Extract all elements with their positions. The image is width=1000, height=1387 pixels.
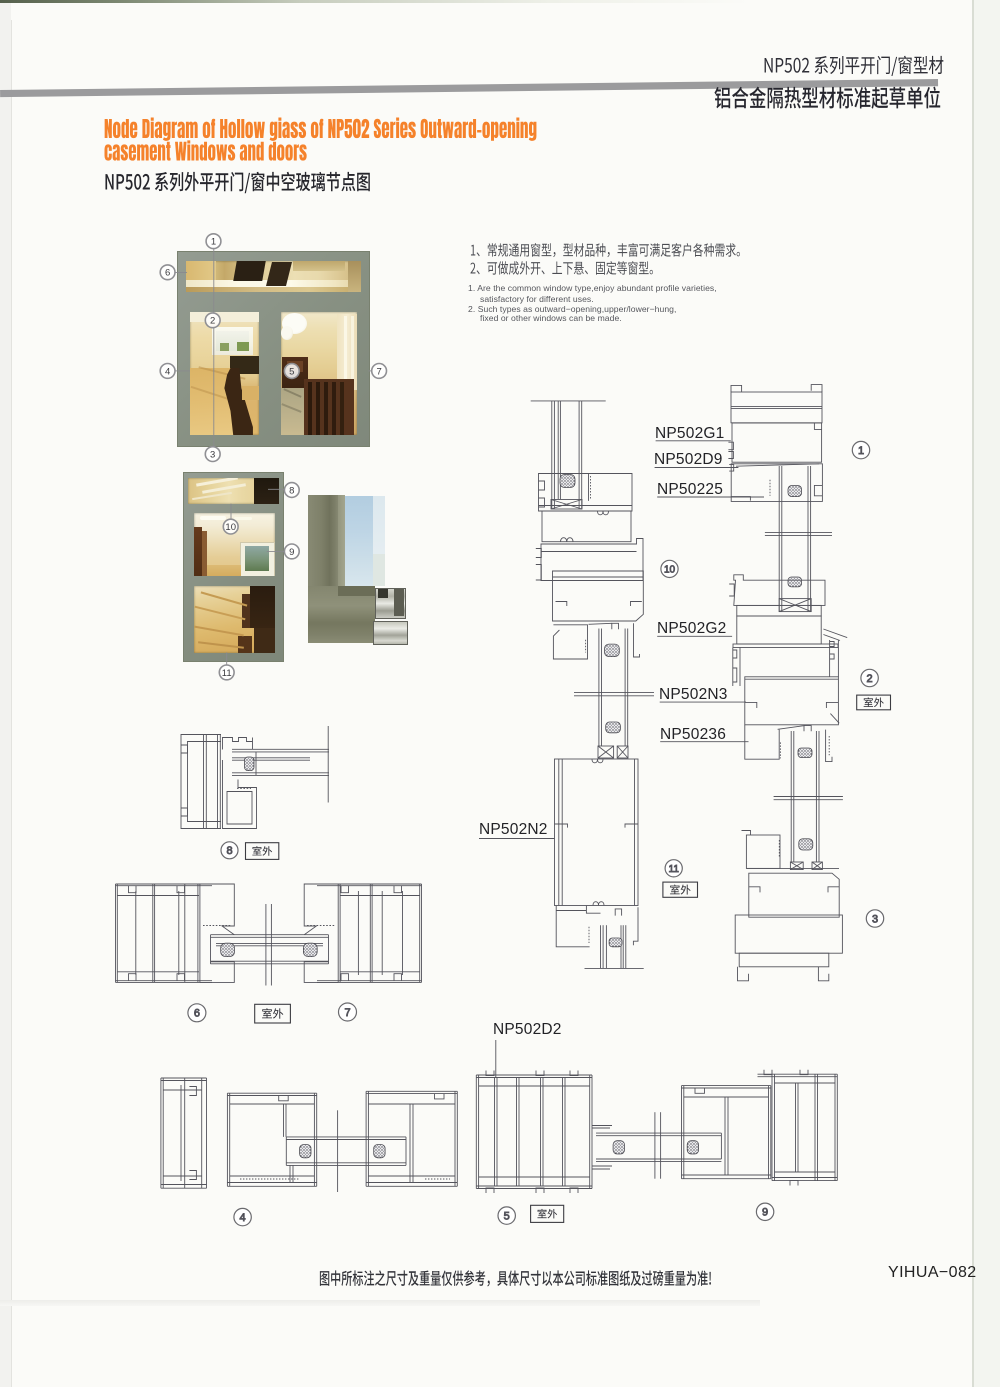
svg-text:8: 8 — [226, 845, 232, 857]
svg-text:7: 7 — [344, 1007, 350, 1019]
svg-text:2: 2 — [210, 316, 215, 327]
svg-text:10: 10 — [664, 564, 676, 575]
svg-text:6: 6 — [165, 268, 170, 279]
svg-text:1: 1 — [211, 237, 216, 248]
svg-text:9: 9 — [762, 1207, 768, 1219]
svg-text:3: 3 — [210, 450, 215, 461]
svg-text:5: 5 — [289, 366, 294, 377]
svg-text:1: 1 — [858, 445, 864, 457]
svg-text:2: 2 — [867, 673, 873, 685]
svg-text:6: 6 — [194, 1008, 200, 1020]
svg-text:8: 8 — [289, 485, 294, 496]
svg-text:11: 11 — [669, 864, 680, 875]
svg-text:7: 7 — [376, 366, 381, 377]
svg-text:4: 4 — [240, 1212, 246, 1224]
svg-text:5: 5 — [504, 1210, 510, 1222]
svg-text:9: 9 — [289, 547, 294, 558]
svg-text:4: 4 — [165, 366, 170, 377]
svg-text:10: 10 — [225, 522, 236, 533]
svg-text:11: 11 — [222, 668, 232, 679]
svg-text:3: 3 — [872, 913, 878, 925]
